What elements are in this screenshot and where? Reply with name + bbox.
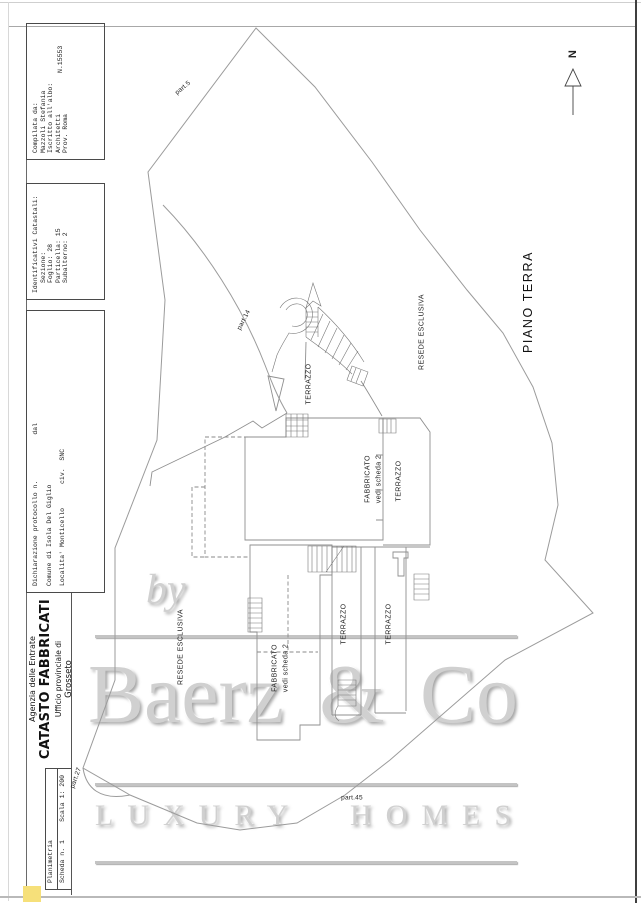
terrazzo-label-lower-1: TERRAZZO [341, 604, 348, 645]
terrazzo-label-lower-2: TERRAZZO [386, 604, 393, 645]
north-label: N [567, 50, 579, 58]
scan-edge-bottom [0, 896, 641, 898]
main-building-outline [245, 418, 383, 540]
fabbricato-line1: FABBRICATO [364, 455, 375, 503]
resede-esclusiva-label-left: RESEDE ESCLUSIVA [178, 609, 185, 685]
scan-edge-left [8, 2, 9, 901]
resede-dashed-area [192, 437, 248, 557]
stair-right [414, 574, 429, 600]
direction-spear [306, 283, 321, 308]
stair-main [308, 546, 356, 572]
part14-boundary-line [163, 205, 287, 413]
stair-top-right [379, 419, 396, 433]
fabbricato-label-upper: FABBRICATO vedi scheda 2 [364, 455, 385, 503]
resede-esclusiva-label-right: RESEDE ESCLUSIVA [419, 294, 426, 370]
parcel-45-label: part.45 [341, 795, 363, 802]
floor-level-label: PIANO TERRA [521, 251, 535, 353]
fabbricato-line2: vedi scheda 2 [374, 455, 385, 503]
terrazzo-label-upper-right: TERRAZZO [396, 461, 403, 502]
lower-building-outline [250, 545, 332, 740]
fabbricato-line1: FABBRICATO [271, 644, 282, 692]
curved-retaining-wall [272, 298, 312, 372]
yellow-highlight-marker [23, 886, 41, 902]
floor-plan-linework [0, 0, 641, 903]
wedge-wall [268, 376, 284, 411]
scan-edge-right [635, 0, 637, 903]
parcel-boundary [83, 28, 593, 830]
fabbricato-line2: vedi scheda 2 [281, 644, 292, 692]
step-landing [347, 366, 368, 386]
terrazzo-label-upper-left: TERRAZZO [306, 364, 313, 405]
path-to-terrace-line [361, 381, 382, 416]
lower-dashed-partition [257, 575, 318, 652]
upper-wing-wall [150, 413, 287, 486]
north-arrow [565, 69, 581, 115]
fabbricato-label-lower: FABBRICATO vedi scheda 2 [271, 644, 292, 692]
scan-edge-top [0, 2, 641, 3]
scanned-cadastral-page: by Baerz & Co LUXURY HOMES Planimetria S… [0, 0, 641, 903]
stair-grid-corner [286, 414, 308, 437]
upper-terrace-outline [383, 418, 430, 545]
